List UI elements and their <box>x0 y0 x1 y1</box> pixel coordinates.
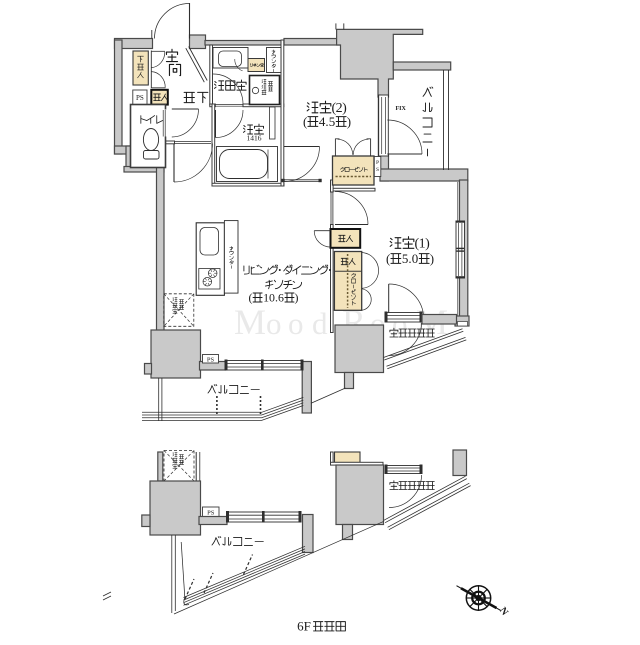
svg-text:0: 0 <box>412 251 418 266</box>
svg-text:(: ( <box>303 114 307 129</box>
svg-text:d: d <box>312 306 328 341</box>
svg-text:PS: PS <box>207 356 215 363</box>
svg-text:6: 6 <box>278 290 284 304</box>
svg-text:6F: 6F <box>297 619 311 634</box>
svg-text:o: o <box>288 306 304 341</box>
svg-text:(: ( <box>386 251 390 266</box>
svg-text:5: 5 <box>329 114 335 129</box>
svg-text:PS: PS <box>136 94 144 102</box>
svg-text:): ) <box>295 290 299 304</box>
svg-text:FIX: FIX <box>396 106 407 112</box>
svg-text:): ) <box>347 114 351 129</box>
svg-text:): ) <box>425 236 430 252</box>
svg-text:S: S <box>376 167 379 173</box>
svg-text:): ) <box>430 251 434 266</box>
svg-text:M: M <box>234 302 266 342</box>
svg-text:o: o <box>266 306 282 341</box>
svg-text:1416: 1416 <box>247 134 262 143</box>
svg-text:5: 5 <box>402 251 408 266</box>
svg-text:(: ( <box>249 290 253 304</box>
svg-text:P: P <box>376 160 379 166</box>
svg-text:PS: PS <box>207 510 215 517</box>
